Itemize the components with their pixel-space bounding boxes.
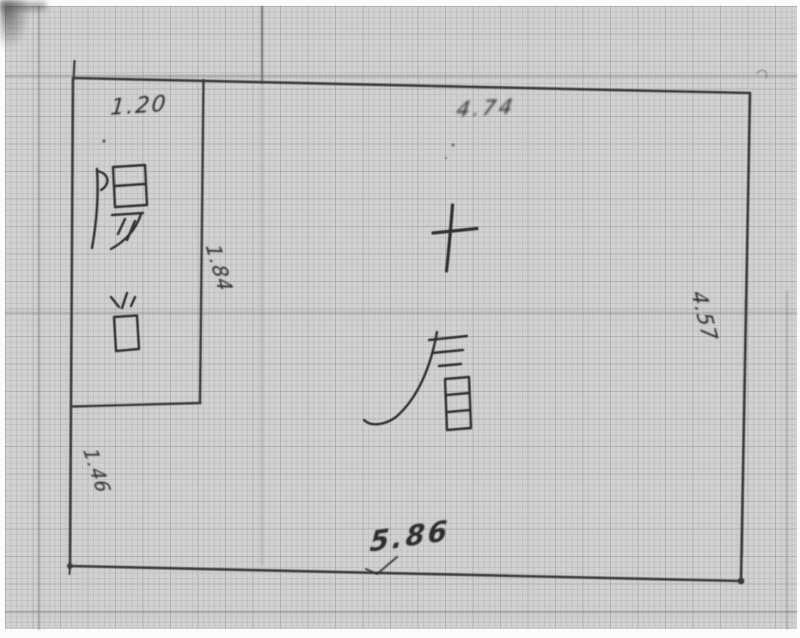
balcony-label-glyph-tai [111, 293, 139, 351]
room-label-glyph-shi [433, 205, 477, 271]
scanned-floor-plan-page: 1.20 4.74 4.57 1.84 1.46 5.86 陽台 十層 [0, 0, 800, 638]
main-wall-outline [70, 78, 750, 581]
pencil-dot [102, 139, 106, 143]
glyph-stroke [439, 364, 461, 366]
stray-mark-top-right [757, 70, 766, 78]
glyph-stroke [447, 205, 453, 271]
glyph-stroke [433, 229, 477, 234]
glyph-stroke [445, 377, 471, 430]
glyph-stroke [118, 219, 125, 234]
corner-ink-blob [738, 578, 745, 585]
glyph-stroke [131, 297, 135, 306]
glyph-stroke [115, 184, 145, 186]
room-label-glyph-ceng [364, 332, 471, 430]
check-tick-bottom [366, 557, 397, 574]
balcony-label-glyph-yang [92, 165, 147, 249]
glyph-stroke [432, 350, 463, 353]
glyph-stroke [122, 293, 127, 308]
glyph-stroke [364, 332, 437, 424]
pencil-dot [445, 157, 448, 160]
walls [67, 61, 766, 584]
wall-overshoot-top-left [74, 61, 75, 80]
glyph-stroke [114, 316, 139, 352]
glyph-stroke [447, 393, 469, 395]
glyph-stroke [448, 410, 470, 412]
corner-ink-blob [67, 563, 73, 569]
glyph-stroke [111, 297, 119, 307]
glyph-stroke [112, 213, 143, 215]
pencil-dot [451, 143, 455, 147]
balcony-bottom-wall [73, 403, 201, 407]
glyph-stroke [92, 169, 98, 248]
